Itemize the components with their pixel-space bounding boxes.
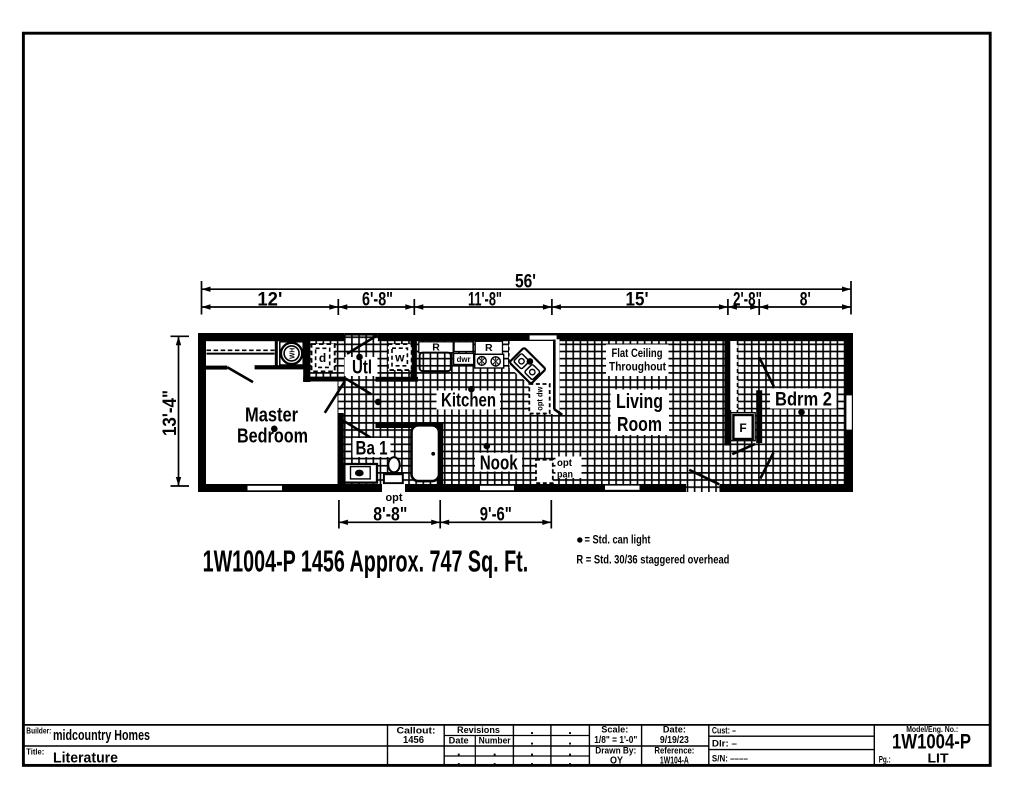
svg-text:Room: Room	[617, 414, 662, 436]
svg-text:56': 56'	[515, 271, 536, 292]
svg-text:Ba 1: Ba 1	[356, 438, 388, 459]
svg-text:Title:: Title:	[26, 748, 44, 757]
svg-text:Literature: Literature	[53, 750, 118, 767]
svg-text:opt: opt	[557, 457, 572, 469]
svg-text:11'-8": 11'-8"	[468, 289, 502, 310]
svg-text:LIT: LIT	[928, 752, 949, 766]
svg-text:Throughout: Throughout	[609, 361, 666, 373]
svg-text:12': 12'	[257, 289, 282, 310]
svg-text:8': 8'	[800, 289, 811, 310]
svg-text:d: d	[319, 351, 326, 365]
svg-text:8'-8": 8'-8"	[373, 504, 407, 525]
svg-text:13'-4": 13'-4"	[160, 390, 181, 436]
svg-text:1W1004-P: 1W1004-P	[892, 731, 971, 754]
svg-text:1W1004-P 1456 Approx. 747 Sq.: 1W1004-P 1456 Approx. 747 Sq. Ft.	[203, 544, 529, 579]
svg-text:15': 15'	[626, 289, 649, 310]
svg-text:Utl: Utl	[352, 357, 372, 378]
svg-text:pan: pan	[557, 469, 573, 481]
svg-text:9/19/23: 9/19/23	[660, 734, 689, 746]
svg-text:Builder:: Builder:	[26, 727, 51, 736]
svg-text:6'-8": 6'-8"	[362, 289, 393, 310]
svg-text:OY: OY	[610, 754, 623, 766]
svg-text:Living: Living	[616, 391, 663, 413]
svg-text:opt: opt	[386, 492, 403, 504]
svg-text:WH: WH	[290, 348, 297, 359]
svg-text:Number: Number	[479, 735, 511, 745]
svg-text:Flat Ceiling: Flat Ceiling	[612, 348, 663, 360]
svg-text:1456: 1456	[403, 734, 424, 746]
svg-text:midcountry Homes: midcountry Homes	[53, 728, 150, 744]
svg-text:w: w	[394, 351, 405, 365]
svg-text:dwr: dwr	[457, 355, 471, 364]
svg-text:R: R	[485, 342, 493, 354]
svg-text:S/N: ––––: S/N: ––––	[712, 754, 748, 765]
svg-text:2'-8": 2'-8"	[733, 289, 762, 310]
svg-text:Bdrm 2: Bdrm 2	[775, 388, 832, 410]
svg-text:F: F	[739, 421, 746, 435]
svg-text:opt dw: opt dw	[534, 386, 544, 410]
svg-text:1W104-A: 1W104-A	[660, 754, 689, 766]
svg-text:Kitchen: Kitchen	[441, 390, 496, 411]
svg-text:R = Std. 30/36 staggered overh: R = Std. 30/36 staggered overhead	[576, 555, 729, 567]
svg-text:= Std. can light: = Std. can light	[585, 535, 651, 547]
svg-text:Cust: –: Cust: –	[712, 725, 736, 736]
svg-text:Nook: Nook	[480, 452, 519, 474]
svg-text:Pg.:: Pg.:	[879, 754, 891, 765]
svg-text:1/8" = 1'-0": 1/8" = 1'-0"	[594, 734, 637, 746]
svg-text:Dlr: –: Dlr: –	[712, 739, 737, 750]
svg-text:Revisions: Revisions	[457, 725, 500, 735]
svg-text:Date: Date	[449, 735, 469, 745]
svg-text:9'-6": 9'-6"	[480, 504, 512, 525]
svg-text:Master: Master	[245, 404, 298, 426]
